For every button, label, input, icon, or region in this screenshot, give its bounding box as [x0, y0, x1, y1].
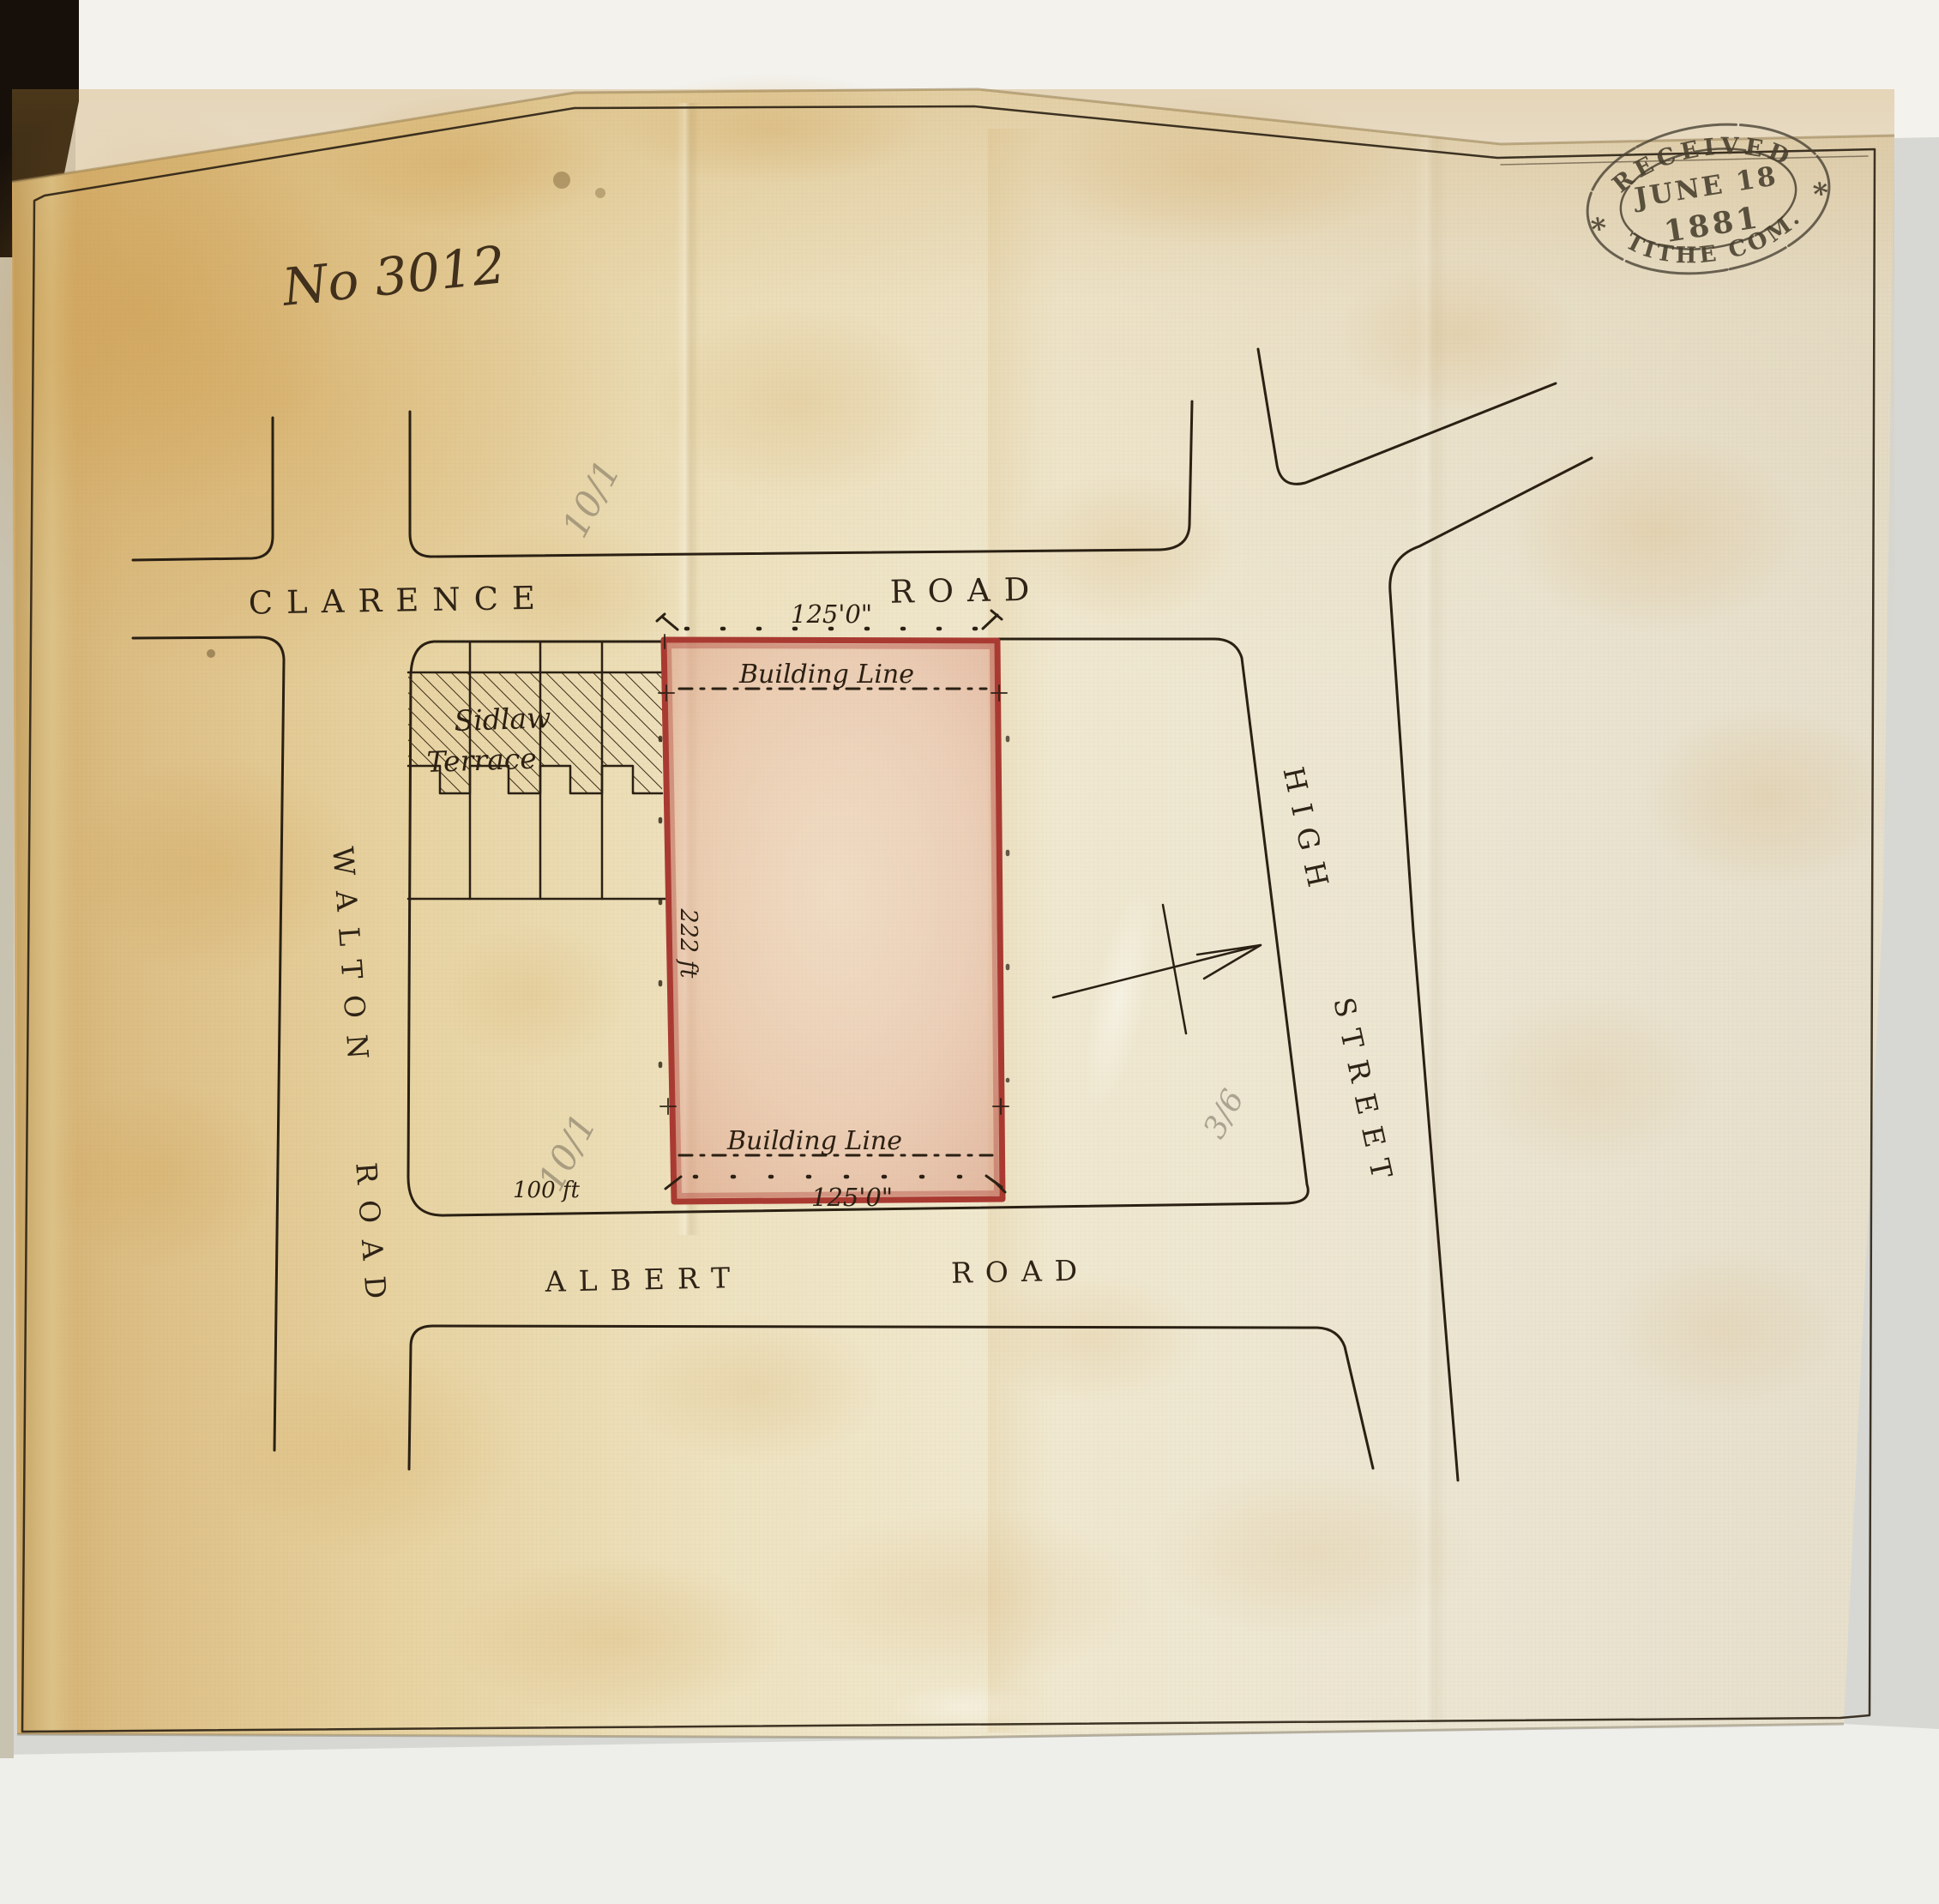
plan-canvas: Sidlaw Terrace CLARENCE ROAD ALBERT [0, 0, 1939, 1904]
street-label-clarence: CLARENCE [248, 580, 549, 622]
bottom-paper-strip [0, 1724, 1939, 1904]
building-line-bottom-label: Building Line [726, 1126, 902, 1156]
dim-width-bottom: 125'0" [811, 1183, 893, 1212]
street-word: ROAD [889, 571, 1043, 611]
street-label-clarence-road: ROAD [889, 571, 1043, 611]
street-word: ALBERT [544, 1261, 743, 1298]
plot-outline [664, 640, 1003, 1202]
building-line-top-label: Building Line [738, 660, 914, 690]
dim-width-top: 125'0" [791, 600, 872, 629]
street-word: CLARENCE [248, 580, 549, 622]
scanned-plan-page: Sidlaw Terrace CLARENCE ROAD ALBERT [0, 0, 1939, 1904]
dim-depth: 222 ft [675, 908, 702, 979]
terrace-name-line2: Terrace [426, 742, 538, 779]
plot-parcel [657, 611, 1009, 1202]
terrace-name-line1: Sidlaw [454, 701, 551, 738]
street-label-albert-road: ROAD [951, 1253, 1091, 1289]
street-word: ROAD [951, 1253, 1091, 1289]
street-label-albert: ALBERT [544, 1261, 743, 1298]
